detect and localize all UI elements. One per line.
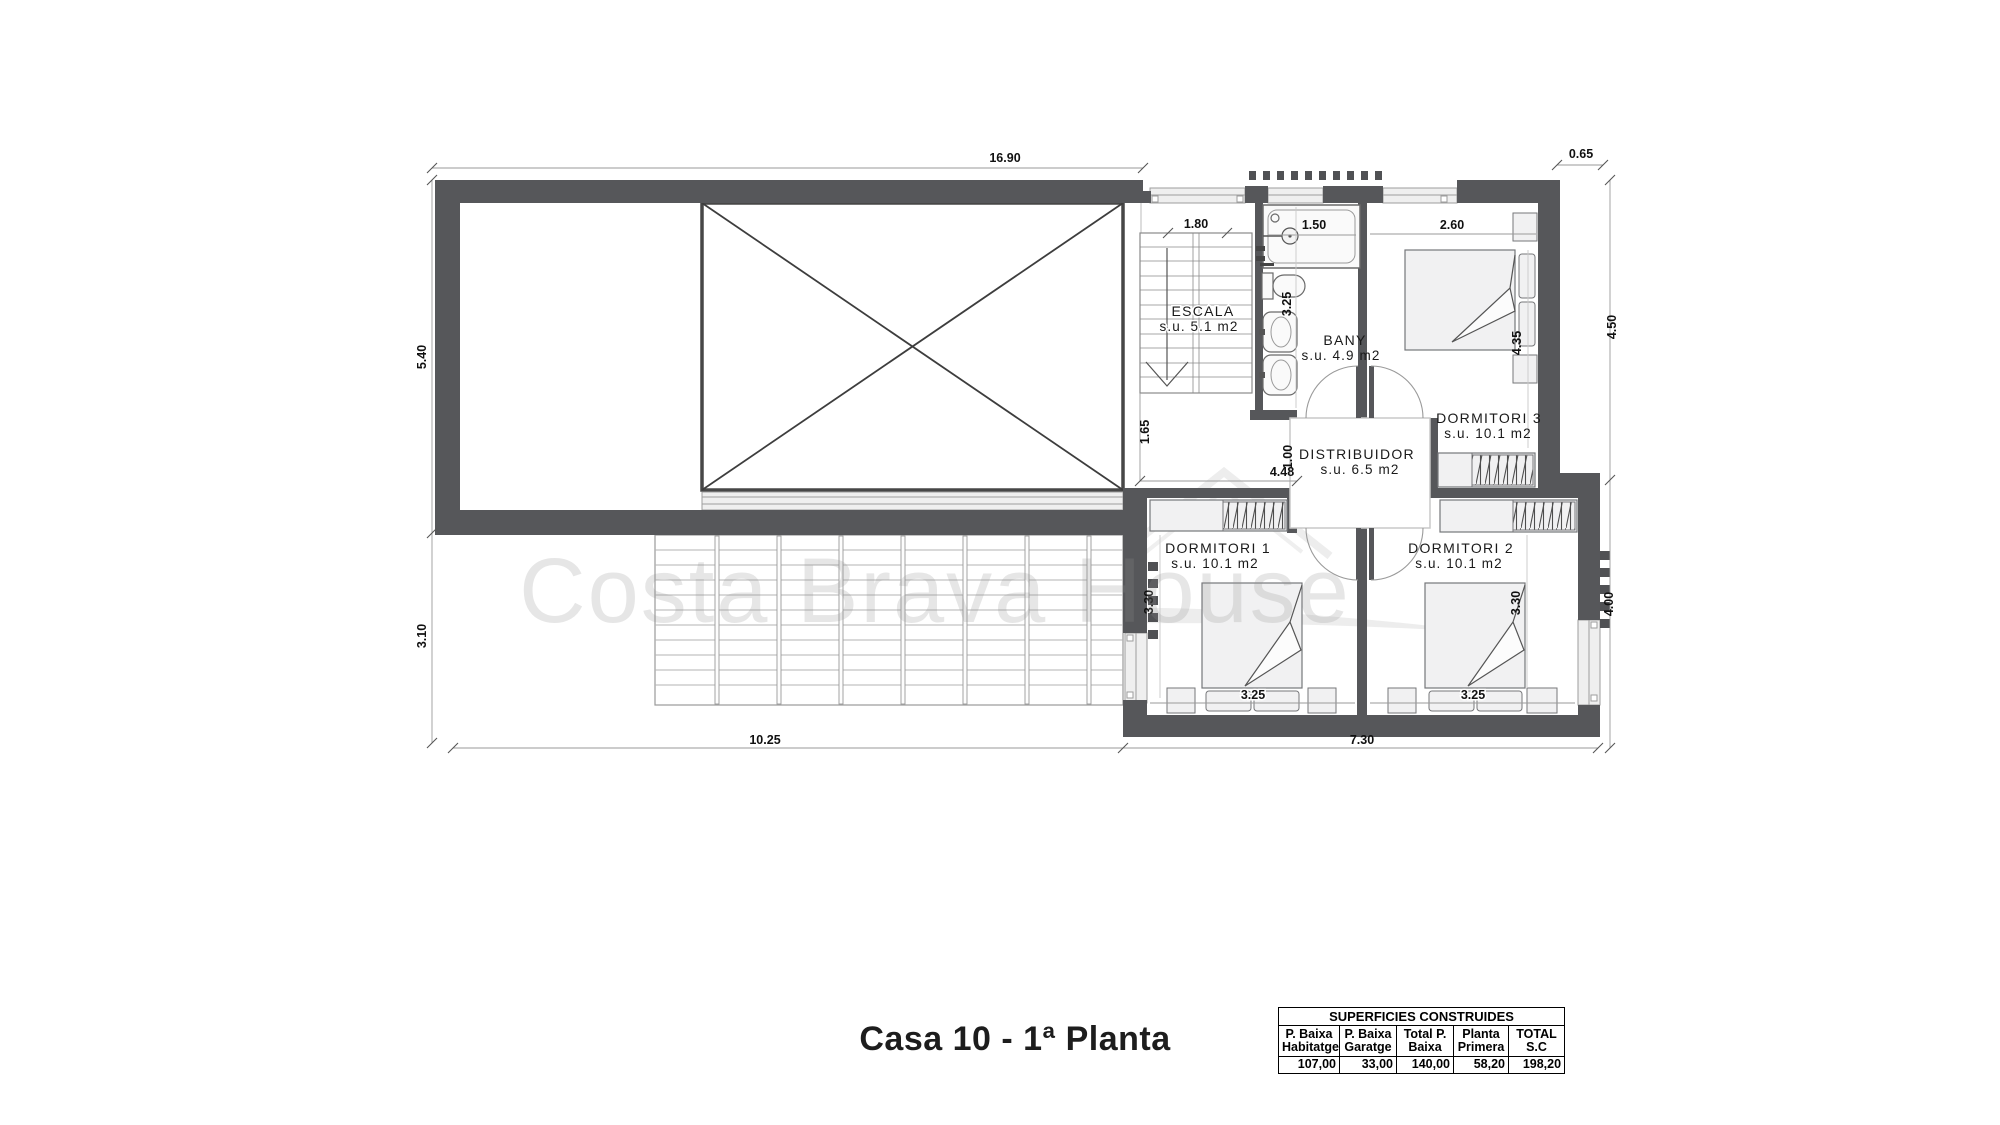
nightstand [1388,688,1416,713]
window-dormitori-3 [1383,188,1457,203]
staircase [1140,203,1252,393]
room-area-distribuidor: s.u. 6.5 m2 [1321,462,1400,477]
room-area-dormitori-3: s.u. 10.1 m2 [1444,426,1532,441]
table-header-cell: TOTALS.C [1509,1026,1565,1057]
void-double-height [702,203,1123,490]
dim-bottom-right: 7.30 [1350,733,1374,747]
dim-bany-depth: 3.25 [1280,292,1294,316]
room-label-dormitori-3: DORMITORI 3 [1436,410,1542,426]
dim-bottom-left: 10.25 [749,733,780,747]
table-value-cell: 140,00 [1397,1057,1454,1074]
dim-hall-width: 4.48 [1270,465,1294,479]
table-value-cell: 58,20 [1454,1057,1509,1074]
sink [1259,355,1297,395]
nightstand [1167,688,1195,713]
bany-fixtures [1256,205,1360,395]
table-value-row: 107,00 33,00 140,00 58,20 198,20 [1279,1057,1565,1074]
table-header-row: P. BaixaHabitatge P. BaixaGaratge Total … [1279,1026,1565,1057]
table-header-cell: PlantaPrimera [1454,1026,1509,1057]
dim-stair-width: 1.80 [1184,217,1208,231]
bathtub [1263,205,1360,268]
dim-dorm2-depth: 3.30 [1509,591,1523,615]
room-label-distribuidor: DISTRIBUIDOR [1299,446,1415,462]
window-stairwell [1150,188,1245,203]
dim-dorm3-width: 2.60 [1440,218,1464,232]
table-value-cell: 107,00 [1279,1057,1340,1074]
dim-left-upper: 5.40 [415,345,429,369]
wardrobe-dormitori-2 [1440,500,1577,532]
floor-plan-page: 16.90 0.65 5.40 3.10 4.50 4.00 10.25 7.3… [0,0,2000,1125]
dim-top-right-offset: 0.65 [1569,147,1593,161]
dim-dorm2-width: 3.25 [1461,688,1485,702]
room-area-escala: s.u. 5.1 m2 [1160,319,1239,334]
window-band-left-wing [702,492,1123,510]
nightstand [1527,688,1557,713]
page-title: Casa 10 - 1ª Planta [850,1020,1180,1059]
sink [1259,312,1297,352]
table-header-cell: Total P.Baixa [1397,1026,1454,1057]
window-dormitori-1 [1125,633,1147,703]
dim-dorm1-width: 3.25 [1241,688,1265,702]
areas-table: SUPERFICIES CONSTRUIDES P. BaixaHabitatg… [1278,1007,1565,1074]
room-area-bany: s.u. 4.9 m2 [1302,348,1381,363]
wardrobe-dormitori-3 [1438,453,1535,487]
dim-left-lower: 3.10 [415,624,429,648]
table-value-cell: 33,00 [1340,1057,1397,1074]
dim-bathtub: 1.50 [1302,218,1326,232]
dim-dorm3-depth: 4.35 [1510,331,1524,355]
window-dormitori-2 [1578,620,1600,705]
nightstand [1513,355,1537,383]
table-title: SUPERFICIES CONSTRUIDES [1279,1008,1565,1026]
room-area-dormitori-2: s.u. 10.1 m2 [1415,556,1503,571]
dim-top-width: 16.90 [989,151,1020,165]
watermark-text: Costa Brava House [519,540,1351,642]
window-bany [1268,188,1323,203]
dim-right-upper: 4.50 [1605,315,1619,339]
room-label-escala: ESCALA [1171,303,1234,319]
wardrobe-dormitori-1 [1150,500,1287,531]
table-value-cell: 198,20 [1509,1057,1565,1074]
nightstand [1513,213,1537,241]
table-header-cell: P. BaixaHabitatge [1279,1026,1340,1057]
table-header-cell: P. BaixaGaratge [1340,1026,1397,1057]
dim-right-lower: 4.00 [1602,592,1616,616]
floor-plan-drawing: 16.90 0.65 5.40 3.10 4.50 4.00 10.25 7.3… [0,0,2000,1125]
room-label-bany: BANY [1323,332,1366,348]
dim-landing: 1.65 [1138,420,1152,444]
room-label-dormitori-2: DORMITORI 2 [1408,540,1514,556]
nightstand [1308,688,1336,713]
